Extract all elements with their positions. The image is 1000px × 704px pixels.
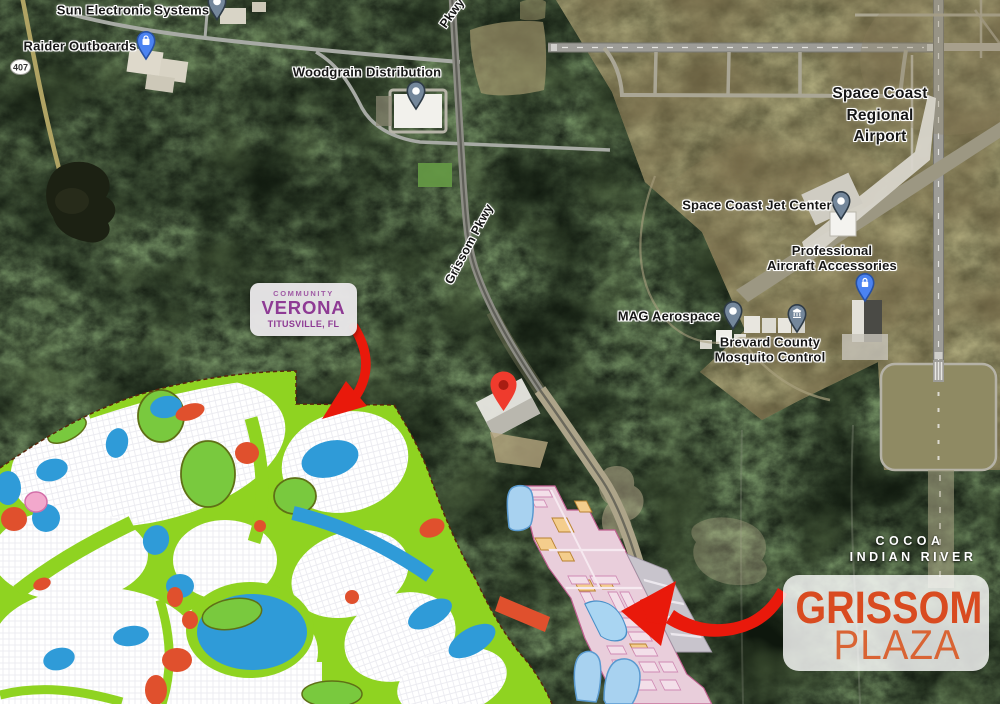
svg-text:407: 407 <box>13 63 28 73</box>
